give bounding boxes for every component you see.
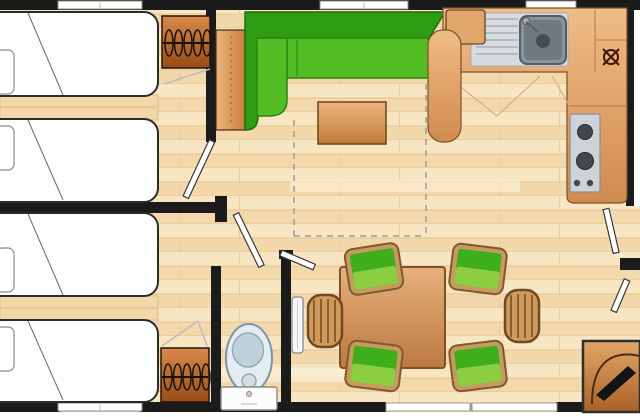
- bed: [0, 119, 158, 202]
- wall-bottom-left: [0, 402, 60, 412]
- dining-chair-wood: [308, 295, 342, 347]
- sofa-seat-corner: [257, 38, 287, 116]
- wall-right-corner: [620, 258, 640, 270]
- pillow: [0, 50, 14, 94]
- floor-highlight: [290, 180, 520, 192]
- floor-plan: [0, 0, 640, 417]
- coffee-table: [318, 102, 386, 144]
- bed: [0, 12, 158, 96]
- toilet-cistern: [221, 387, 277, 410]
- outside-bottom: [0, 412, 640, 417]
- floor-plan-svg: [0, 0, 640, 417]
- cistern-button: [246, 391, 251, 396]
- outside-right: [634, 10, 640, 206]
- pillow: [0, 327, 14, 371]
- stove-knob: [587, 180, 593, 186]
- pillow: [0, 248, 14, 292]
- bay-door-right: [472, 403, 557, 411]
- stove-knob: [574, 180, 580, 186]
- pillow: [0, 126, 14, 170]
- stove-burner: [578, 125, 593, 140]
- wall-wc-right: [281, 252, 291, 402]
- bed: [0, 320, 158, 402]
- bay-door-left: [386, 403, 470, 411]
- wall-divider-cap: [215, 196, 227, 222]
- stove-burner: [577, 153, 594, 170]
- toilet-bowl-inner: [233, 333, 264, 367]
- sink-drain: [536, 34, 550, 48]
- kitchen-peninsula: [428, 30, 461, 142]
- wall-wc-left: [211, 266, 221, 402]
- toilet-flush: [242, 374, 256, 388]
- bed: [0, 213, 158, 296]
- wall-bedroom-divider: [0, 202, 220, 213]
- dining-chair-wood: [505, 290, 539, 342]
